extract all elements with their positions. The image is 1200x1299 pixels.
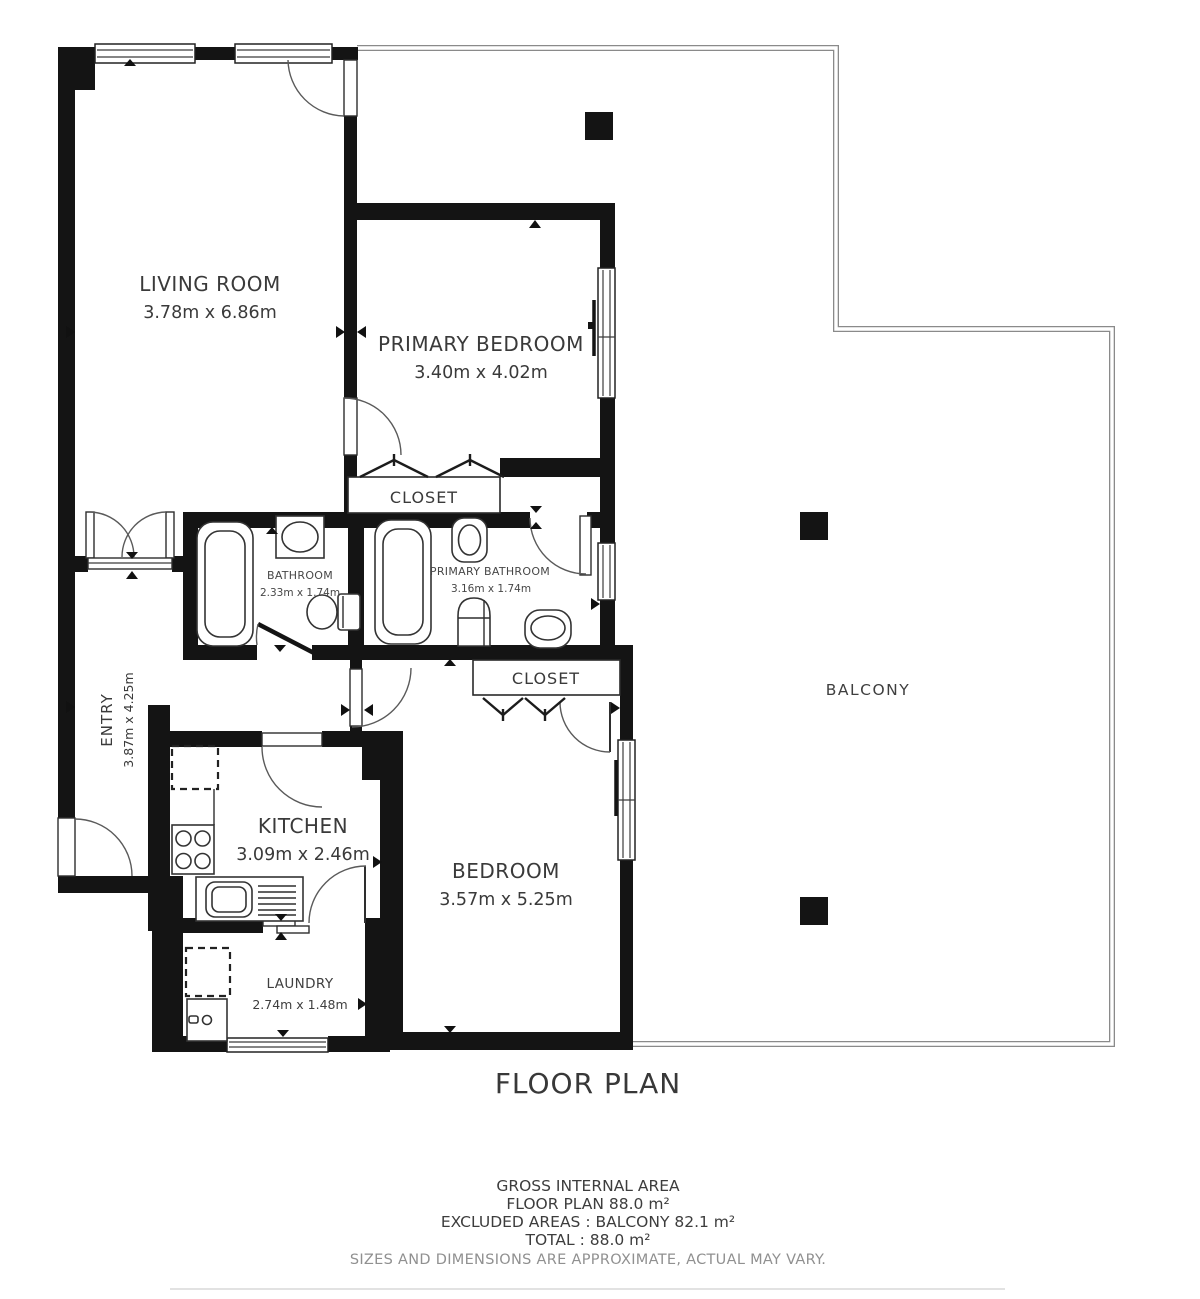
primary-bathroom-label: PRIMARY BATHROOM [430, 565, 550, 578]
bathroom-dims: 2.33m x 1.74m [260, 587, 340, 599]
laundry-label: LAUNDRY [266, 976, 333, 992]
summary-line-1: GROSS INTERNAL AREA [496, 1177, 680, 1195]
entry-dims: 3.87m x 4.25m [121, 672, 136, 767]
laundry-dims: 2.74m x 1.48m [252, 997, 347, 1012]
summary-line-2: FLOOR PLAN 88.0 m² [506, 1195, 669, 1213]
doors [58, 60, 610, 933]
closet-bedroom-label: CLOSET [512, 669, 580, 688]
page-title: FLOOR PLAN [495, 1067, 681, 1100]
kitchen-label: KITCHEN [258, 814, 348, 838]
living-room-label: LIVING ROOM [139, 272, 281, 296]
living-room-dims: 3.78m x 6.86m [143, 303, 277, 323]
primary-bedroom-dims: 3.40m x 4.02m [414, 363, 548, 383]
summary-line-3: EXCLUDED AREAS : BALCONY 82.1 m² [441, 1213, 735, 1231]
primary-bathroom-dims: 3.16m x 1.74m [451, 583, 531, 595]
floor-plan-drawing: LIVING ROOM 3.78m x 6.86m PRIMARY BEDROO… [0, 0, 1200, 1299]
kitchen-dims: 3.09m x 2.46m [236, 845, 370, 865]
closet-primary-label: CLOSET [390, 488, 458, 507]
summary-disclaimer: SIZES AND DIMENSIONS ARE APPROXIMATE, AC… [350, 1252, 826, 1268]
floor-plan-page: LIVING ROOM 3.78m x 6.86m PRIMARY BEDROO… [0, 0, 1200, 1299]
bathroom-label: BATHROOM [267, 569, 333, 582]
bedroom-label: BEDROOM [452, 859, 560, 883]
primary-bedroom-label: PRIMARY BEDROOM [378, 332, 584, 356]
balcony-label: BALCONY [826, 681, 910, 699]
entry-label: ENTRY [98, 693, 116, 747]
summary-line-4: TOTAL : 88.0 m² [525, 1231, 651, 1249]
bedroom-dims: 3.57m x 5.25m [439, 890, 573, 910]
annotations: FLOOR PLAN GROSS INTERNAL AREA FLOOR PLA… [170, 1067, 1005, 1289]
